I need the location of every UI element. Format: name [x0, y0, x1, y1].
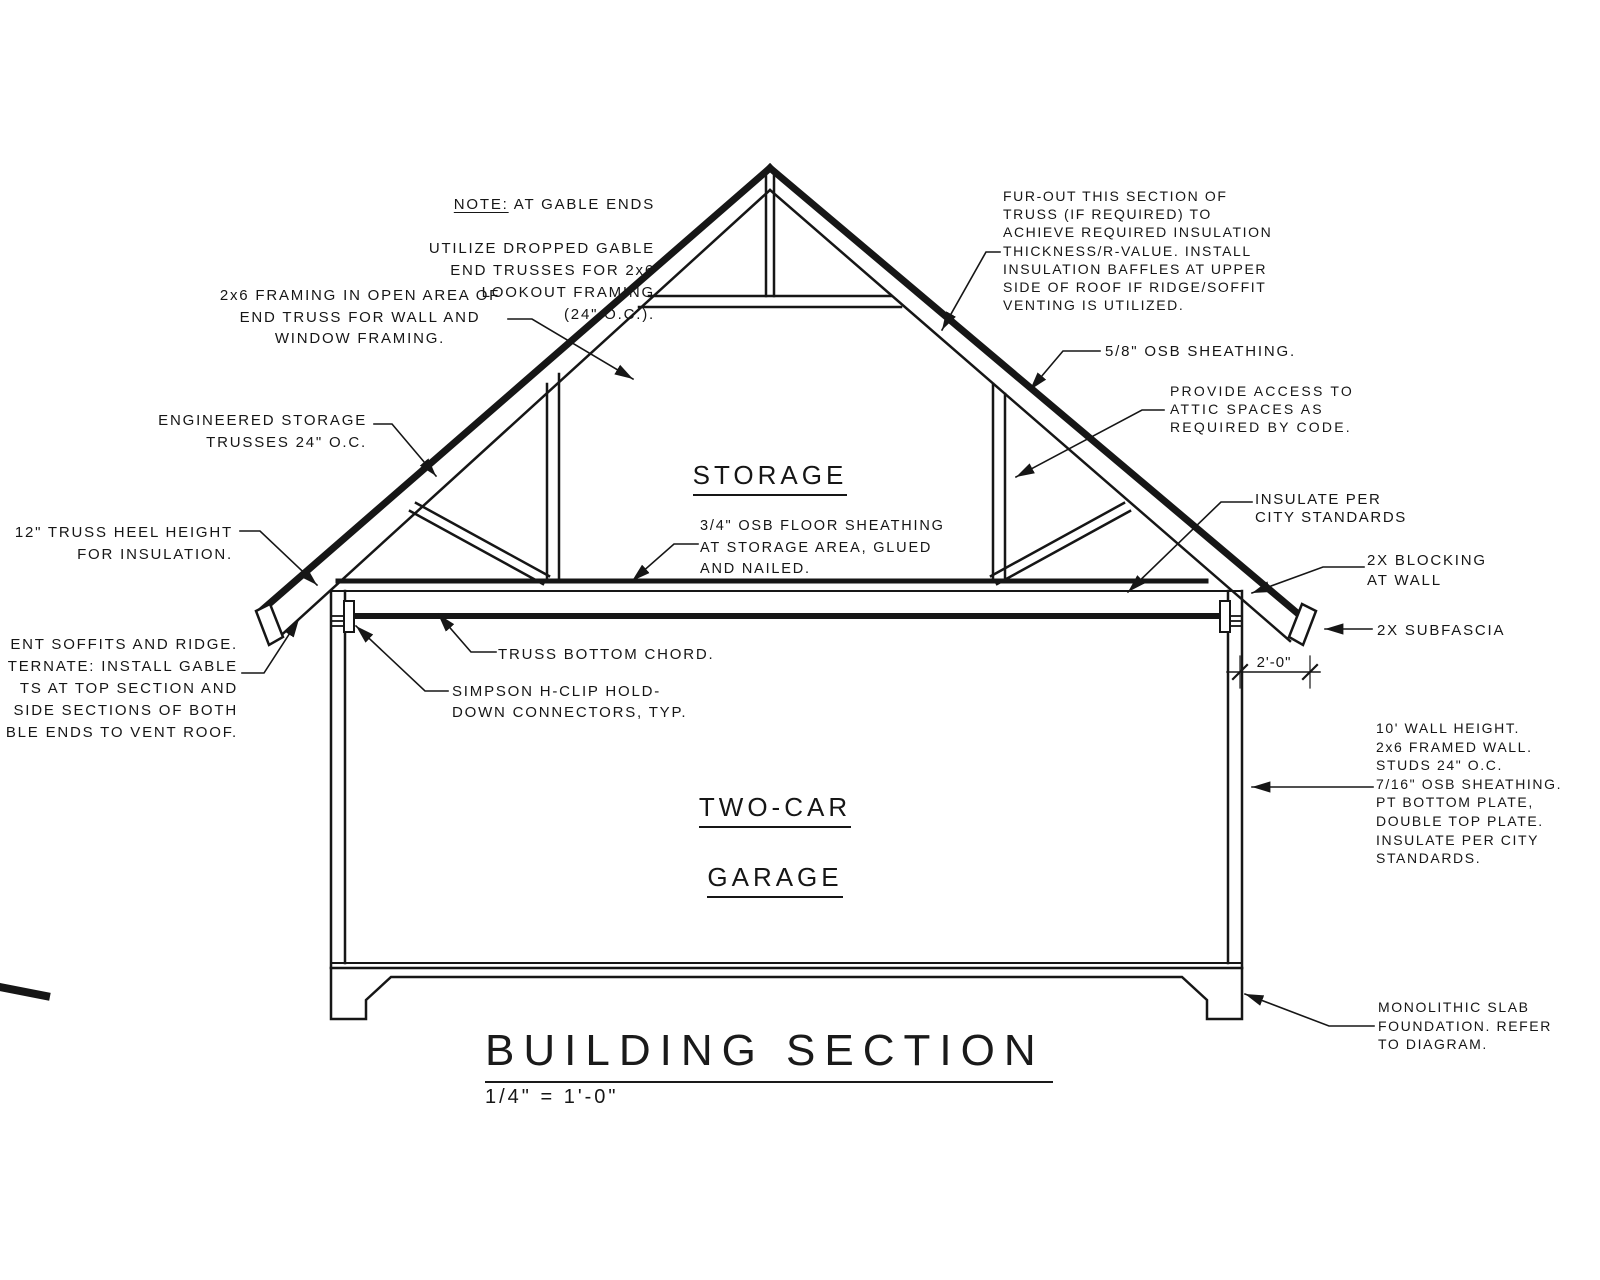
note-subfascia: 2X SUBFASCIA [1377, 620, 1505, 642]
note-label: NOTE: [454, 196, 509, 213]
garage-text-line1: TWO-CAR [699, 791, 851, 828]
note-blocking: 2X BLOCKING AT WALL [1367, 551, 1487, 590]
note-attic-access: PROVIDE ACCESS TO ATTIC SPACES AS REQUIR… [1170, 382, 1354, 437]
building-section-sheet: NOTE: AT GABLE ENDS UTILIZE DROPPED GABL… [0, 0, 1600, 1280]
note-osb-58: 5/8" OSB SHEATHING. [1105, 341, 1296, 363]
leader-truss-heel [240, 531, 317, 585]
note-osb-floor: 3/4" OSB FLOOR SHEATHING AT STORAGE AREA… [700, 516, 945, 581]
foundation-outline [331, 963, 1242, 1019]
cutoff-edge-line [0, 987, 46, 996]
storage-text: STORAGE [693, 459, 848, 496]
drawing-scale: 1/4" = 1'-0" [485, 1086, 1053, 1109]
leader-h-clip [356, 626, 448, 691]
leader-bottom-chord [438, 614, 496, 652]
note-2x6-framing: 2x6 FRAMING IN OPEN AREA OF END TRUSS FO… [195, 285, 525, 350]
note-insulate: INSULATE PER CITY STANDARDS [1255, 491, 1407, 527]
garage-text-line2: GARAGE [707, 861, 842, 898]
note-foundation: MONOLITHIC SLAB FOUNDATION. REFER TO DIA… [1378, 998, 1552, 1054]
drawing-title: BUILDING SECTION [485, 1026, 1053, 1083]
room-label-storage: STORAGE [670, 426, 870, 496]
subfascia-left [256, 604, 283, 645]
note-fur-out: FUR-OUT THIS SECTION OF TRUSS (IF REQUIR… [1003, 187, 1323, 314]
note-h-clip: SIMPSON H-CLIP HOLD- DOWN CONNECTORS, TY… [452, 681, 687, 723]
leader-slab [1245, 994, 1374, 1026]
note-wall-spec: 10' WALL HEIGHT. 2x6 FRAMED WALL. STUDS … [1376, 719, 1562, 868]
note-engineered-trusses: ENGINEERED STORAGE TRUSSES 24" O.C. [105, 410, 367, 454]
dimension-text: 2'-0" [1238, 652, 1310, 674]
note-vent-soffits: ENT SOFFITS AND RIDGE. TERNATE: INSTALL … [0, 634, 238, 744]
note-bottom-chord: TRUSS BOTTOM CHORD. [498, 644, 714, 666]
room-label-garage: TWO-CAR GARAGE [680, 758, 870, 931]
leader-osb-58 [1030, 351, 1100, 390]
note-truss-heel: 12" TRUSS HEEL HEIGHT FOR INSULATION. [0, 522, 233, 566]
floor-and-chord [331, 581, 1242, 616]
leader-osb-floor [632, 544, 698, 581]
title-block: BUILDING SECTION 1/4" = 1'-0" [485, 1026, 1053, 1109]
note-line1: AT GABLE ENDS [509, 196, 655, 213]
